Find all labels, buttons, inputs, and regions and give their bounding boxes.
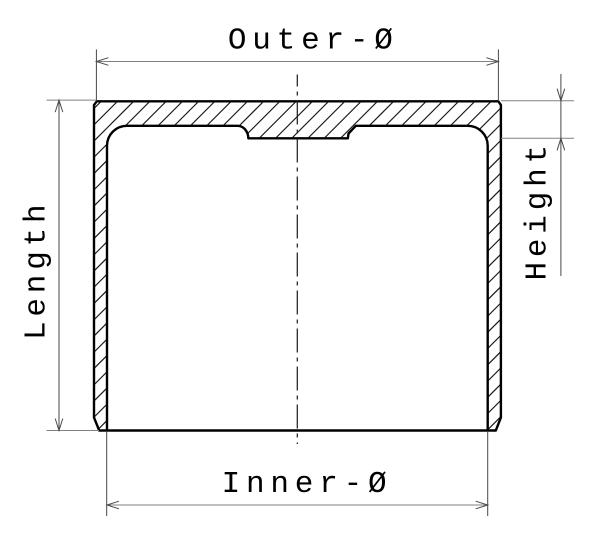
svg-text:Length: Length: [20, 200, 55, 340]
svg-text:Inner-Ø: Inner-Ø: [222, 467, 393, 502]
svg-text:Height: Height: [521, 140, 556, 280]
svg-text:Outer-Ø: Outer-Ø: [228, 24, 399, 59]
